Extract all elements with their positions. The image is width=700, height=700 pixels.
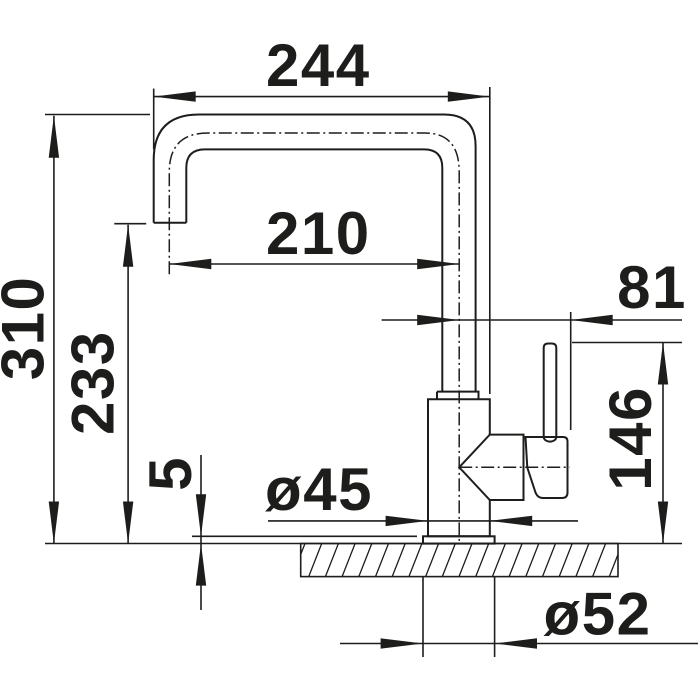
svg-text:ø45: ø45 (265, 456, 373, 523)
svg-text:146: 146 (597, 386, 664, 491)
svg-text:310: 310 (0, 276, 56, 381)
svg-text:233: 233 (60, 330, 127, 435)
svg-text:ø52: ø52 (544, 581, 652, 648)
svg-text:210: 210 (266, 200, 371, 267)
svg-text:5: 5 (137, 456, 204, 491)
svg-text:244: 244 (266, 32, 371, 99)
svg-text:81: 81 (617, 254, 687, 321)
